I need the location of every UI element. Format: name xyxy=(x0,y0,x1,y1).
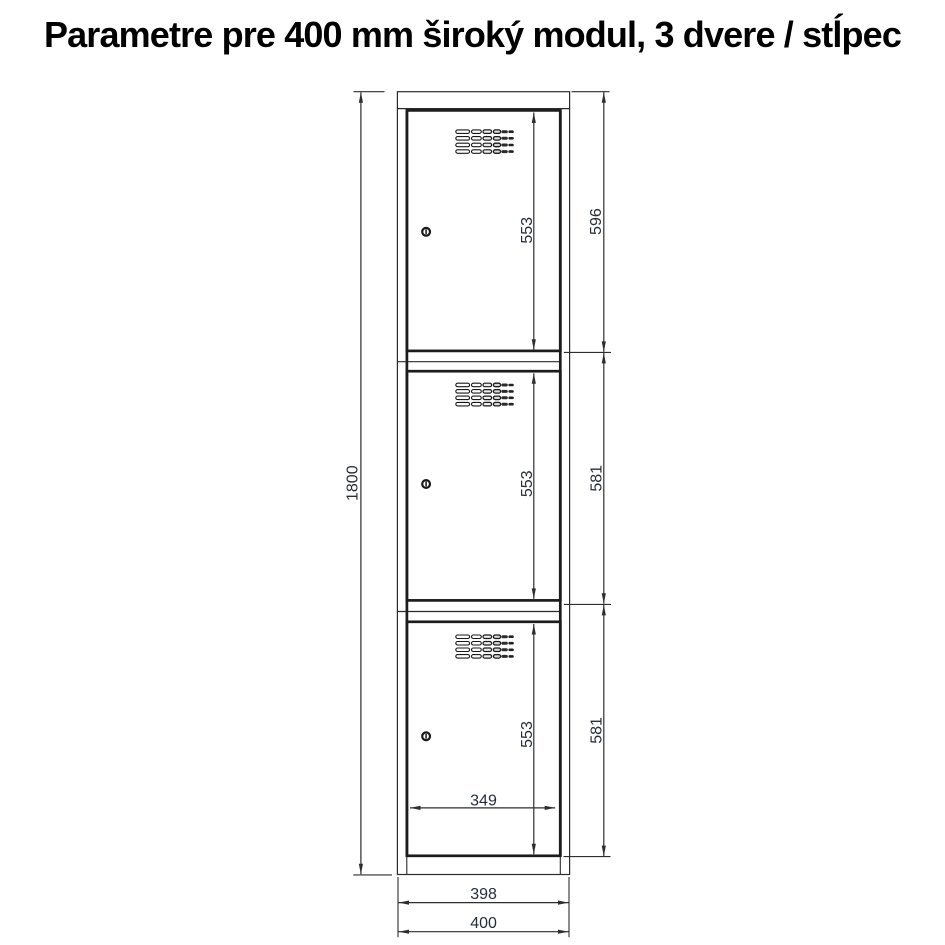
svg-text:1800: 1800 xyxy=(345,465,362,501)
svg-text:596: 596 xyxy=(588,208,605,235)
svg-text:553: 553 xyxy=(519,470,536,497)
svg-text:553: 553 xyxy=(519,721,536,748)
svg-text:581: 581 xyxy=(588,465,605,492)
svg-text:581: 581 xyxy=(588,717,605,744)
svg-text:553: 553 xyxy=(519,217,536,244)
svg-text:349: 349 xyxy=(470,792,497,809)
svg-text:400: 400 xyxy=(470,915,497,932)
svg-text:398: 398 xyxy=(470,886,497,903)
